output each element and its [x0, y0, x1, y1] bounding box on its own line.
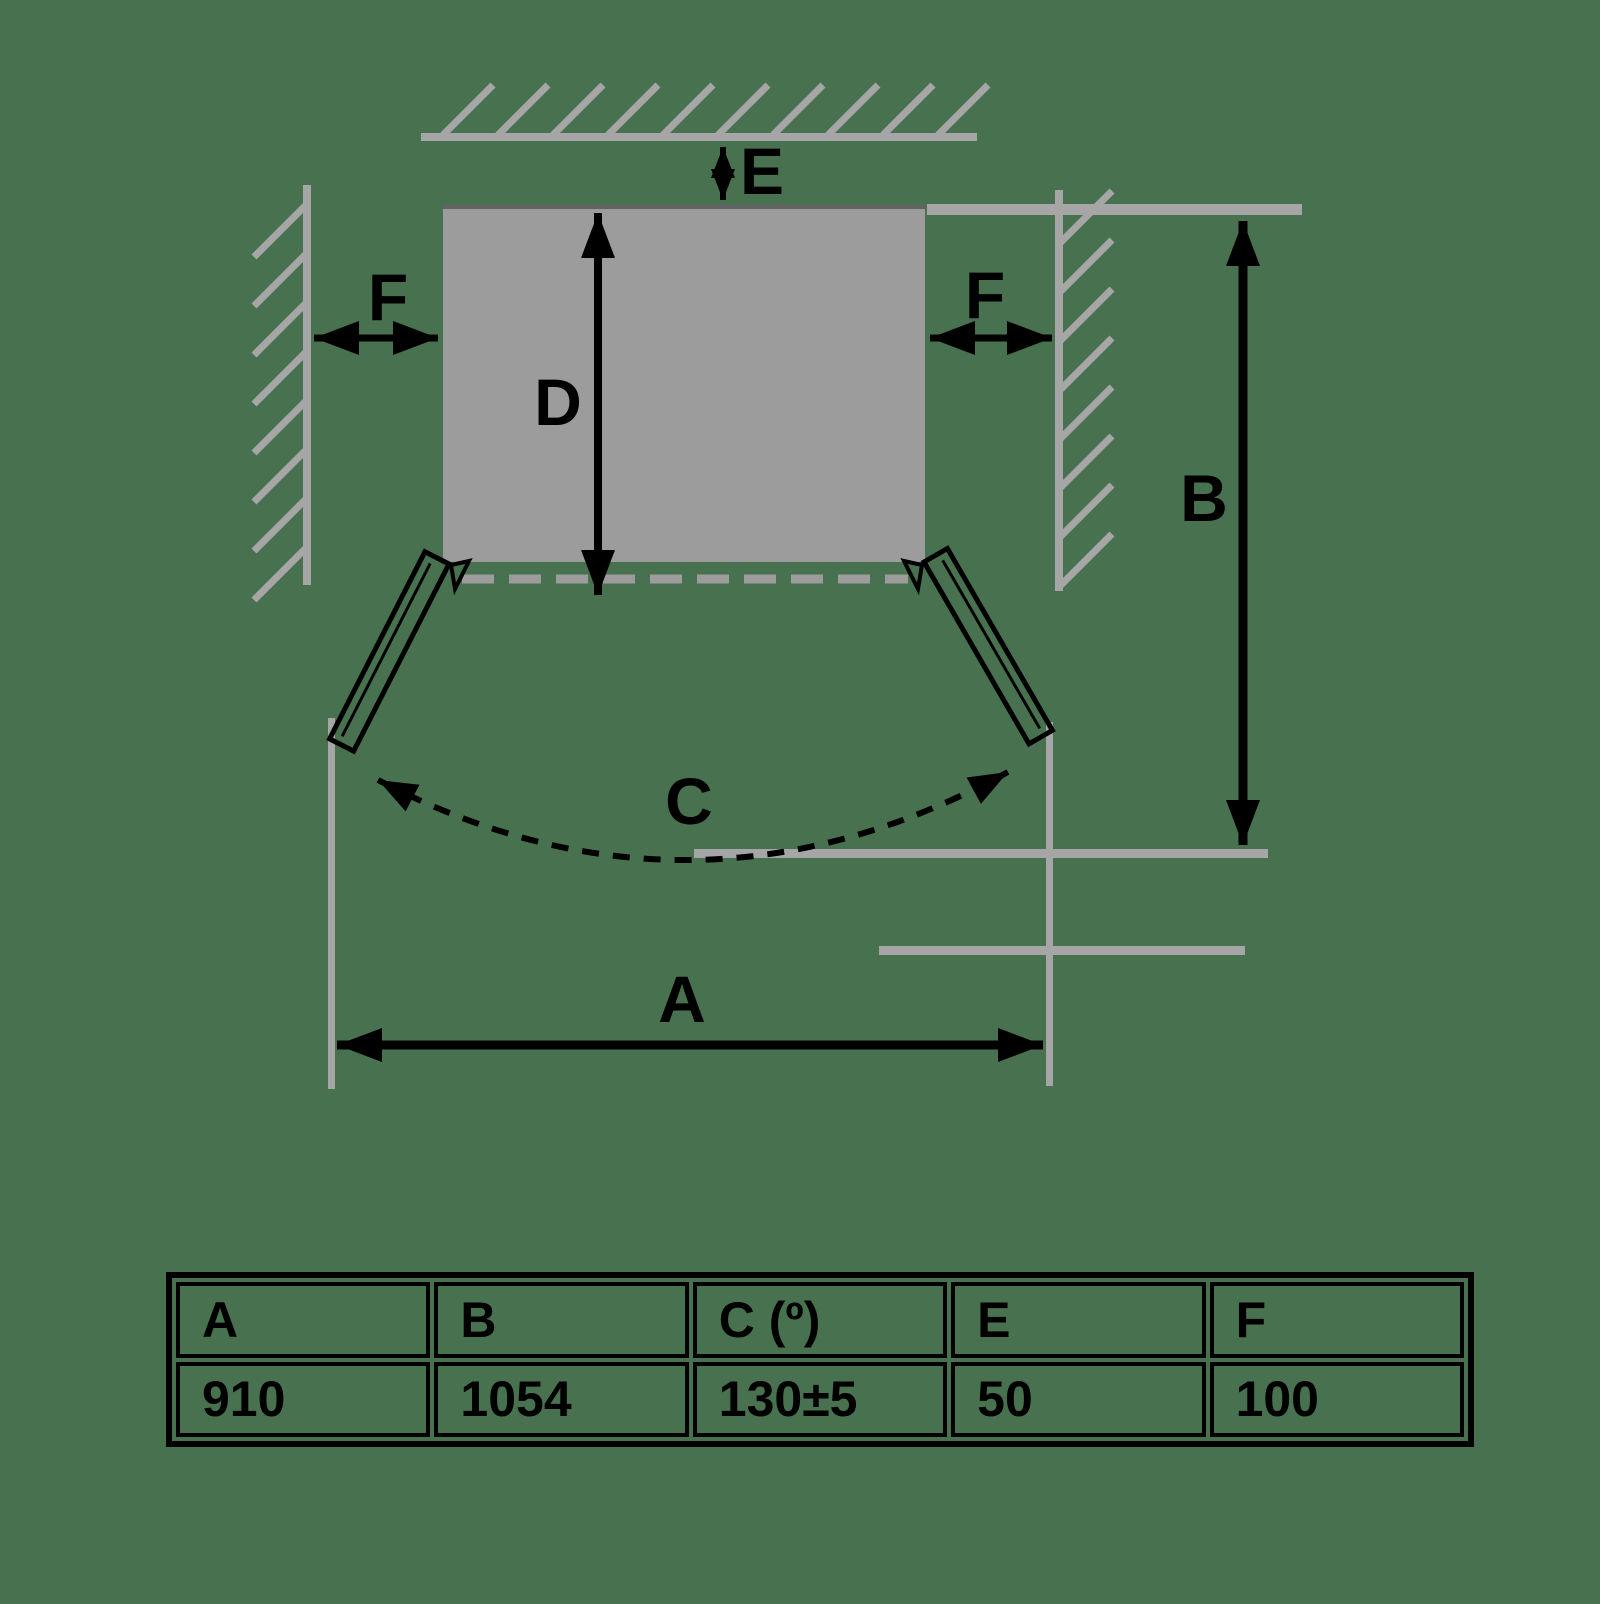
secondary-reference-line: [879, 946, 1245, 955]
dimensions-table-header-row: A B C (º) E F: [176, 1282, 1464, 1358]
value-cell-a: 910: [176, 1362, 430, 1438]
appliance-body: [443, 205, 925, 562]
right-wall: [1055, 190, 1112, 591]
header-cell-e: E: [951, 1282, 1205, 1358]
rear-wall: [421, 85, 988, 141]
left-wall-hatching: [254, 205, 306, 600]
value-cell-e: 50: [951, 1362, 1205, 1438]
value-cell-f: 100: [1210, 1362, 1464, 1438]
dimensions-table: A B C (º) E F 910 1054 130±5 50 100: [166, 1272, 1474, 1447]
value-cell-b: 1054: [434, 1362, 688, 1438]
door-right-open: [904, 549, 1052, 744]
appliance-body-fill: [443, 205, 925, 562]
rear-wall-hatching: [443, 85, 988, 135]
label-f-left: F: [368, 260, 408, 334]
door-left-open: [330, 552, 469, 751]
label-e: E: [740, 134, 784, 208]
label-d: D: [534, 365, 582, 439]
left-wall-line: [303, 185, 311, 585]
header-cell-a: A: [176, 1282, 430, 1358]
rear-wall-line: [421, 133, 977, 141]
header-cell-f: F: [1210, 1282, 1464, 1358]
left-wall: [254, 185, 311, 600]
value-cell-c: 130±5: [693, 1362, 947, 1438]
appliance-top-edge: [443, 205, 925, 209]
right-wall-hatching: [1060, 191, 1112, 586]
header-cell-b: B: [434, 1282, 688, 1358]
label-a: A: [658, 962, 706, 1036]
label-c: C: [665, 764, 713, 838]
appliance-clearance-diagram: E F F D B C A A B C (º) E F 910 1054 130…: [0, 0, 1600, 1599]
label-f-right: F: [965, 258, 1005, 332]
label-b: B: [1180, 461, 1228, 535]
b-top-reference-line: [927, 204, 1302, 215]
a-right-extent-line: [1046, 722, 1053, 1086]
dimensions-table-value-row: 910 1054 130±5 50 100: [176, 1362, 1464, 1438]
a-left-extent-line: [328, 718, 335, 1089]
header-cell-c: C (º): [693, 1282, 947, 1358]
